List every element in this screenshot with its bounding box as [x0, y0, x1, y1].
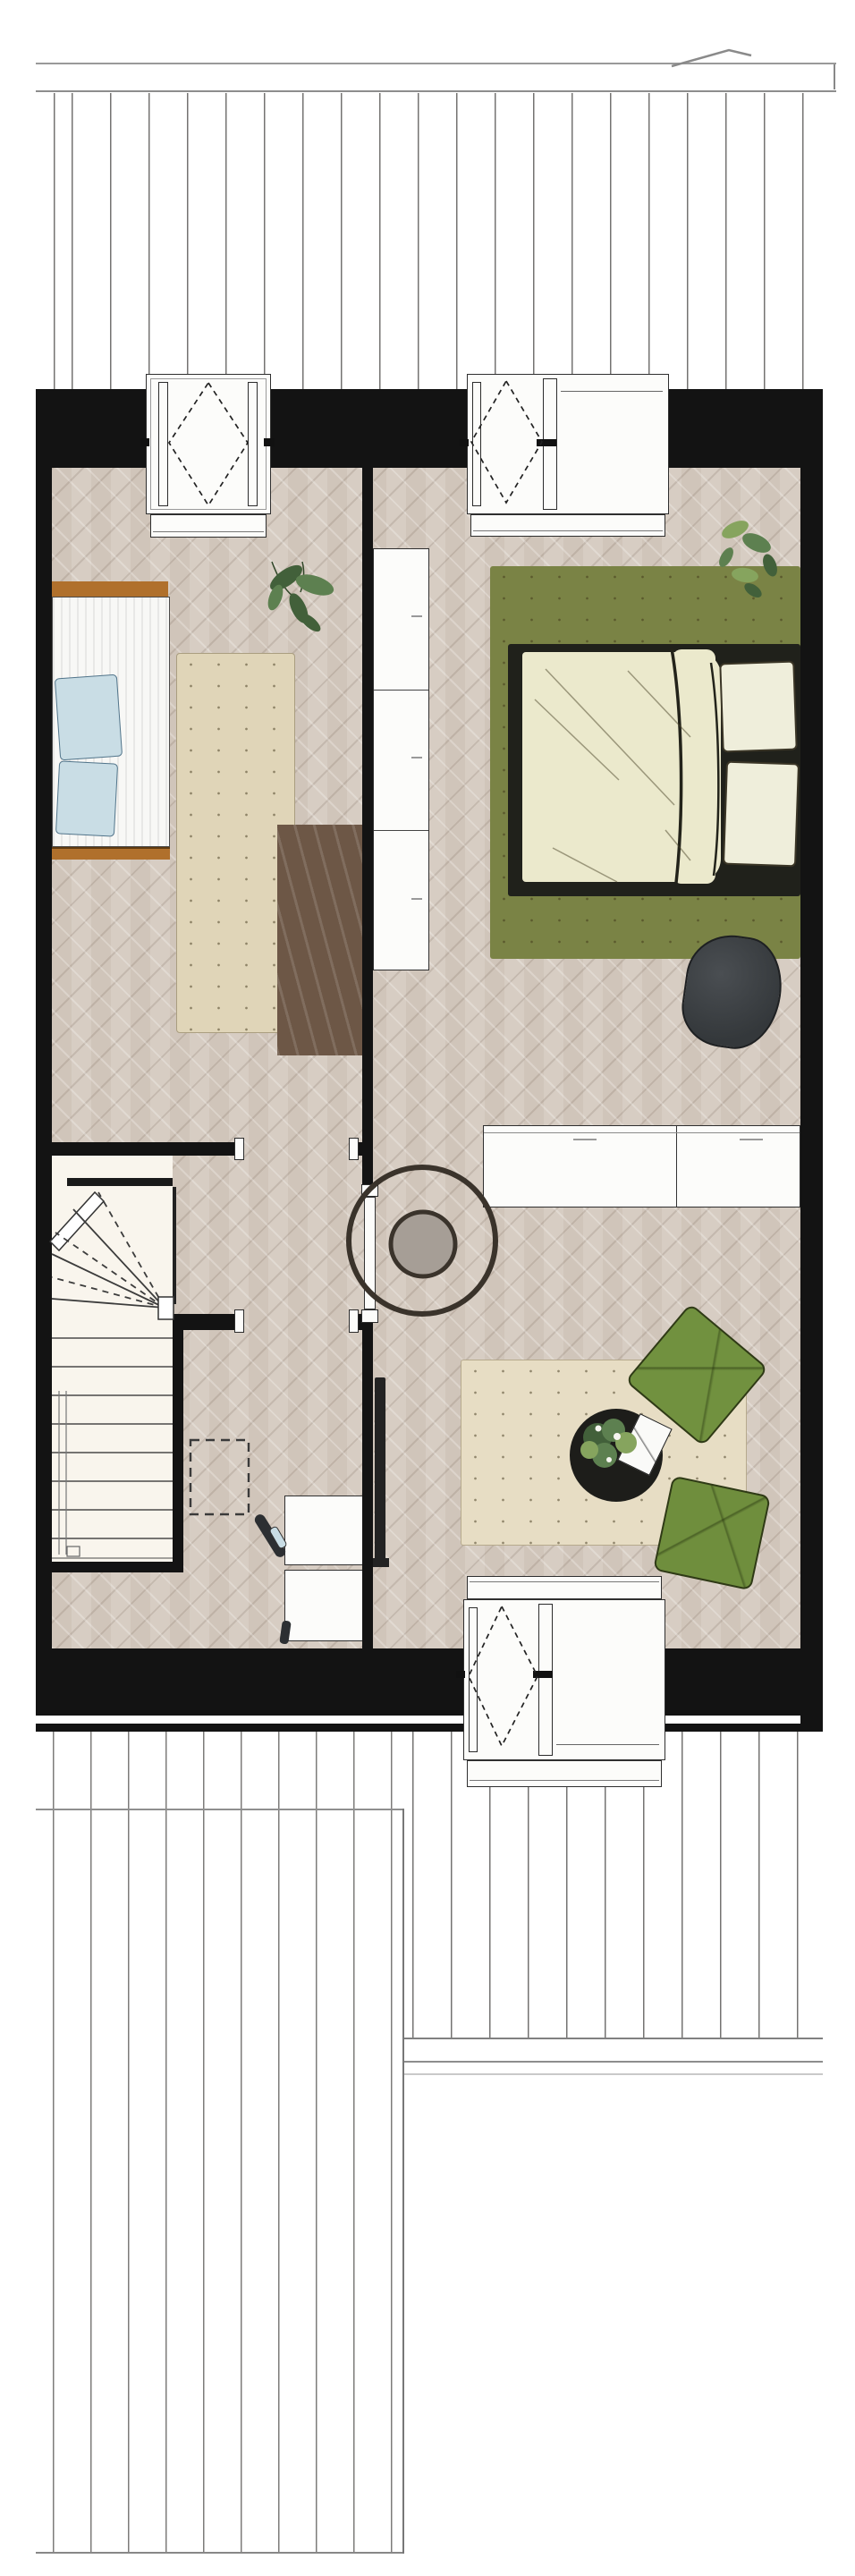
- window-bottom-inner-sill-line: [470, 1581, 659, 1582]
- door-jamb-south-1: [234, 1309, 244, 1333]
- window-bottom-mullion: [538, 1604, 553, 1756]
- window-top-right-tick-a: [460, 439, 469, 446]
- window-bottom-frame: [463, 1599, 665, 1760]
- stair-railing: [173, 1187, 176, 1304]
- bed-right-pillow-2: [723, 761, 800, 868]
- wall-left: [36, 389, 52, 1716]
- window-top-left-jamb-b: [248, 382, 258, 506]
- window-bottom-outer-sill-line: [470, 1780, 659, 1781]
- stair-top-stripe: [67, 1178, 173, 1186]
- window-top-left-frame: [146, 374, 271, 514]
- window-top-left-jamb-a: [158, 382, 168, 506]
- wardrobe-shelf-line-2: [374, 830, 428, 831]
- door-jamb-mid-1: [361, 1184, 378, 1197]
- window-top-right-sill-line: [473, 530, 663, 531]
- wardrobe-shelf-line-1: [374, 690, 428, 691]
- wall-right: [800, 389, 823, 1716]
- wall-bottom-right-step: [800, 1648, 823, 1733]
- window-top-right-tick-b: [537, 439, 556, 446]
- stair-area: [52, 1156, 173, 1562]
- door-jamb-mid-2: [361, 1309, 378, 1323]
- tv-foot: [371, 1558, 389, 1567]
- bed-right-pillow-1: [719, 661, 797, 753]
- wall-stair-bottom: [36, 1562, 183, 1572]
- roof-bottom-left-planks: [36, 1732, 404, 2554]
- sideboard-top-line: [484, 1132, 800, 1133]
- window-bottom-jamb-a: [469, 1607, 478, 1752]
- desk-1: [284, 1496, 363, 1565]
- roof-bottom-left-edge-line: [36, 1809, 404, 1810]
- window-top-right-jamb-a: [472, 382, 481, 506]
- tv-panel: [375, 1377, 385, 1561]
- sideboard-divider: [676, 1126, 677, 1207]
- window-top-right-pane-line: [561, 391, 663, 392]
- wall-bottom-band: [36, 1648, 823, 1716]
- door-jamb-north-1: [234, 1138, 244, 1160]
- bed-left-footboard: [52, 847, 170, 860]
- floor-cushion-2: [653, 1476, 771, 1591]
- door-leaf-open: [364, 1197, 376, 1309]
- window-top-right-sill: [470, 514, 665, 537]
- wardrobe-handle-1: [411, 615, 422, 617]
- window-top-left-tick-b: [264, 438, 275, 446]
- wall-hall-south-left: [173, 1314, 237, 1330]
- window-top-left-tick-a: [140, 438, 149, 446]
- bed-right-duvet-fold: [673, 649, 715, 884]
- roof-sections-divider: [402, 1809, 404, 2554]
- desk-2: [284, 1570, 363, 1641]
- roof-top-planks: [36, 93, 823, 389]
- rug-brown: [277, 825, 362, 1055]
- wall-middle-lower: [362, 1324, 373, 1648]
- floor-plan: [0, 0, 855, 2576]
- sideboard-handle-2: [740, 1139, 763, 1140]
- window-bottom-tick-b: [533, 1671, 553, 1678]
- wall-hall-north-left: [36, 1142, 237, 1156]
- window-bottom-outer-sill: [467, 1760, 662, 1787]
- sideboard-handle-1: [573, 1139, 597, 1140]
- window-top-right-frame: [467, 374, 669, 514]
- window-top-left-sill: [150, 514, 267, 538]
- wardrobe-handle-3: [411, 898, 422, 900]
- window-bottom-inner-sill: [467, 1576, 662, 1599]
- wall-stair-right: [173, 1330, 183, 1572]
- eave-line: [36, 1724, 823, 1732]
- roof-bottom-left-fascia: [36, 2552, 404, 2576]
- roof-bottom-right-fascia: [404, 2038, 823, 2063]
- wardrobe-handle-2: [411, 757, 422, 758]
- sideboard: [483, 1125, 800, 1207]
- bed-left-pillow-2: [55, 760, 118, 836]
- window-top-left-sill-line: [153, 531, 264, 532]
- door-jamb-north-2: [349, 1138, 359, 1160]
- window-bottom-tick-a: [456, 1671, 465, 1678]
- wall-middle-upper: [362, 468, 373, 1191]
- door-jamb-south-2: [349, 1309, 359, 1333]
- roof-top-fascia: [36, 63, 836, 92]
- wardrobe: [373, 548, 429, 970]
- bed-left-pillow-1: [55, 674, 123, 761]
- window-bottom-pane-line: [556, 1744, 659, 1745]
- roof-bottom-right-faint-line: [404, 2073, 823, 2075]
